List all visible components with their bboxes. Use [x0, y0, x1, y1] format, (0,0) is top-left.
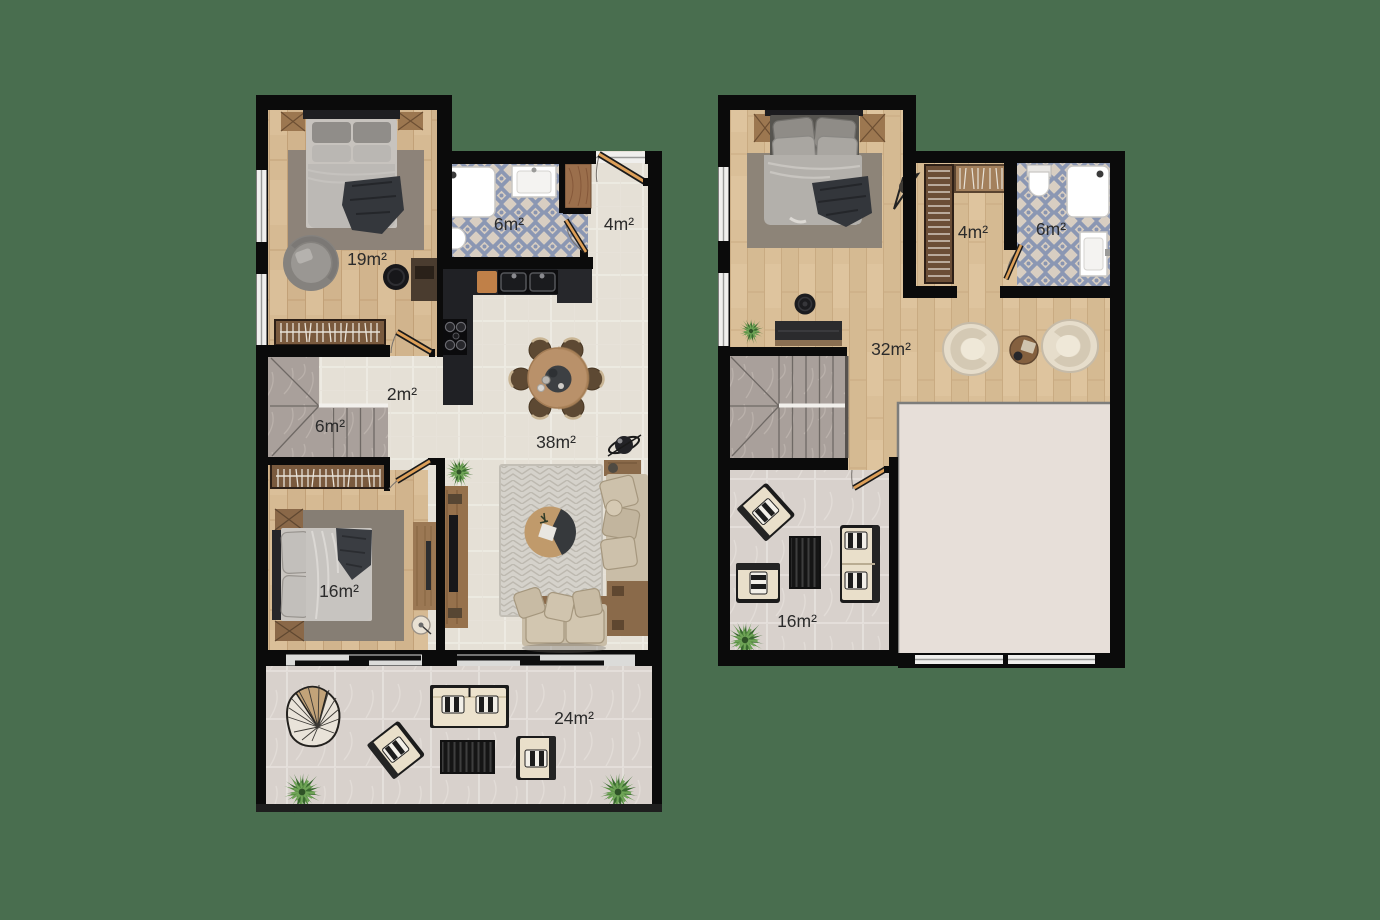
- svg-text:6m²: 6m²: [494, 214, 524, 234]
- svg-text:16m²: 16m²: [319, 581, 359, 601]
- svg-text:24m²: 24m²: [554, 708, 594, 728]
- svg-text:32m²: 32m²: [871, 339, 911, 359]
- svg-text:6m²: 6m²: [315, 416, 345, 436]
- svg-text:2m²: 2m²: [387, 384, 417, 404]
- svg-text:4m²: 4m²: [958, 222, 988, 242]
- svg-text:16m²: 16m²: [777, 611, 817, 631]
- svg-text:19m²: 19m²: [347, 249, 387, 269]
- svg-text:6m²: 6m²: [1036, 219, 1066, 239]
- svg-text:38m²: 38m²: [536, 432, 576, 452]
- svg-text:4m²: 4m²: [604, 214, 634, 234]
